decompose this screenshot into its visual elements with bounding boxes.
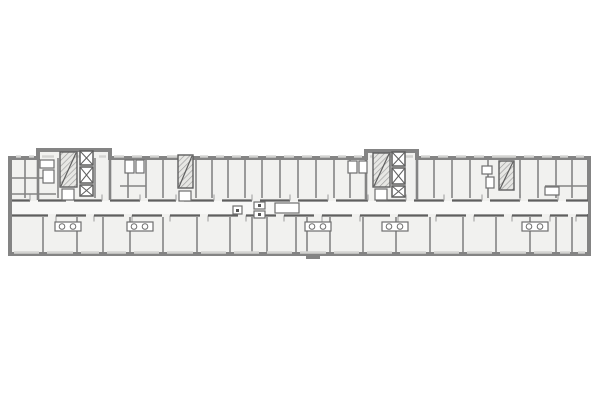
fixture bbox=[359, 161, 367, 173]
fixture bbox=[348, 161, 357, 173]
fixture bbox=[62, 189, 74, 200]
fixture bbox=[375, 189, 387, 200]
fixture bbox=[482, 166, 492, 174]
dot-marker bbox=[236, 209, 239, 212]
fixture bbox=[179, 191, 191, 201]
corridor bbox=[12, 201, 588, 214]
dot-marker bbox=[258, 204, 261, 207]
fixture bbox=[275, 203, 299, 213]
fixture bbox=[43, 170, 54, 183]
dot-marker bbox=[258, 213, 261, 216]
floor-plan-drawing bbox=[0, 0, 600, 400]
fixture bbox=[40, 160, 54, 168]
fixture bbox=[545, 187, 559, 195]
fixture bbox=[125, 160, 134, 173]
floor-plan-page bbox=[0, 0, 600, 400]
fixture bbox=[136, 160, 144, 173]
entrance-step bbox=[306, 255, 320, 259]
fixture bbox=[486, 177, 494, 188]
